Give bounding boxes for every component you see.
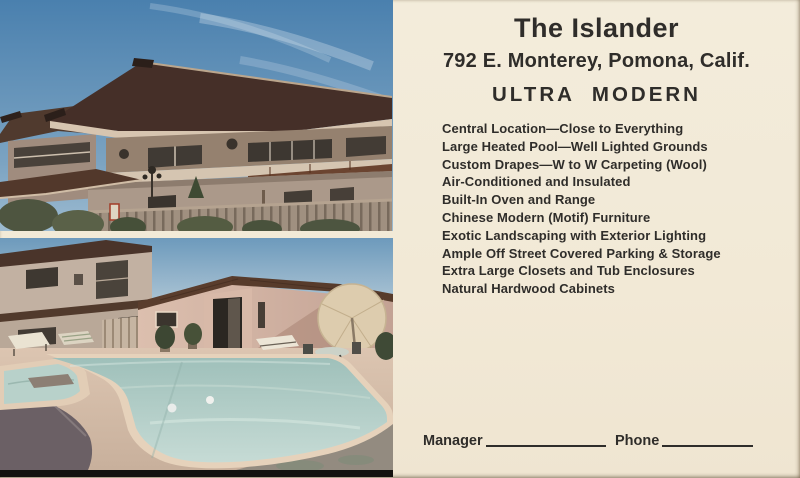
door-panel — [228, 298, 240, 350]
info-panel: The Islander 792 E. Monterey, Pomona, Ca… — [393, 0, 800, 478]
window — [156, 312, 177, 327]
pool-ball — [206, 396, 214, 404]
tagline: ULTRA MODERN — [393, 83, 800, 107]
manager-label: Manager — [423, 433, 483, 449]
page-title: The Islander — [393, 13, 800, 44]
feature-item: Central Location—Close to Everything — [442, 120, 721, 138]
porthole-window — [119, 149, 129, 159]
building-photo-art — [0, 0, 393, 231]
feature-item: Ample Off Street Covered Parking & Stora… — [442, 245, 721, 263]
feature-item: Extra Large Closets and Tub Enclosures — [442, 262, 721, 280]
feature-item: Natural Hardwood Cabinets — [442, 280, 721, 298]
contact-row: Manager Phone — [423, 433, 753, 449]
vent — [74, 274, 83, 285]
feature-item: Custom Drapes—W to W Carpeting (Wool) — [442, 156, 721, 174]
upper-window — [248, 139, 332, 162]
feature-item: Large Heated Pool—Well Lighted Grounds — [442, 138, 721, 156]
address: 792 E. Monterey, Pomona, Calif. — [393, 50, 800, 73]
window — [26, 267, 58, 289]
feature-item: Chinese Modern (Motif) Furniture — [442, 209, 721, 227]
window-slot — [258, 302, 265, 328]
porthole-window — [227, 139, 238, 150]
pool-ball — [168, 404, 177, 413]
upper-window — [346, 136, 386, 157]
small-sign — [110, 204, 119, 220]
pool-photo-art — [0, 238, 393, 470]
phone-label: Phone — [615, 433, 659, 449]
feature-item: Built-In Oven and Range — [442, 191, 721, 209]
header-block: The Islander 792 E. Monterey, Pomona, Ca… — [393, 0, 800, 107]
photo-building-exterior — [0, 0, 393, 231]
photo-pool — [0, 238, 393, 477]
phone-blank-line — [662, 445, 753, 447]
manager-blank-line — [486, 445, 606, 447]
postcard: The Islander 792 E. Monterey, Pomona, Ca… — [0, 0, 800, 478]
features-list: Central Location—Close to Everything Lar… — [442, 120, 721, 298]
feature-item: Exotic Landscaping with Exterior Lightin… — [442, 227, 721, 245]
feature-item: Air-Conditioned and Insulated — [442, 173, 721, 191]
